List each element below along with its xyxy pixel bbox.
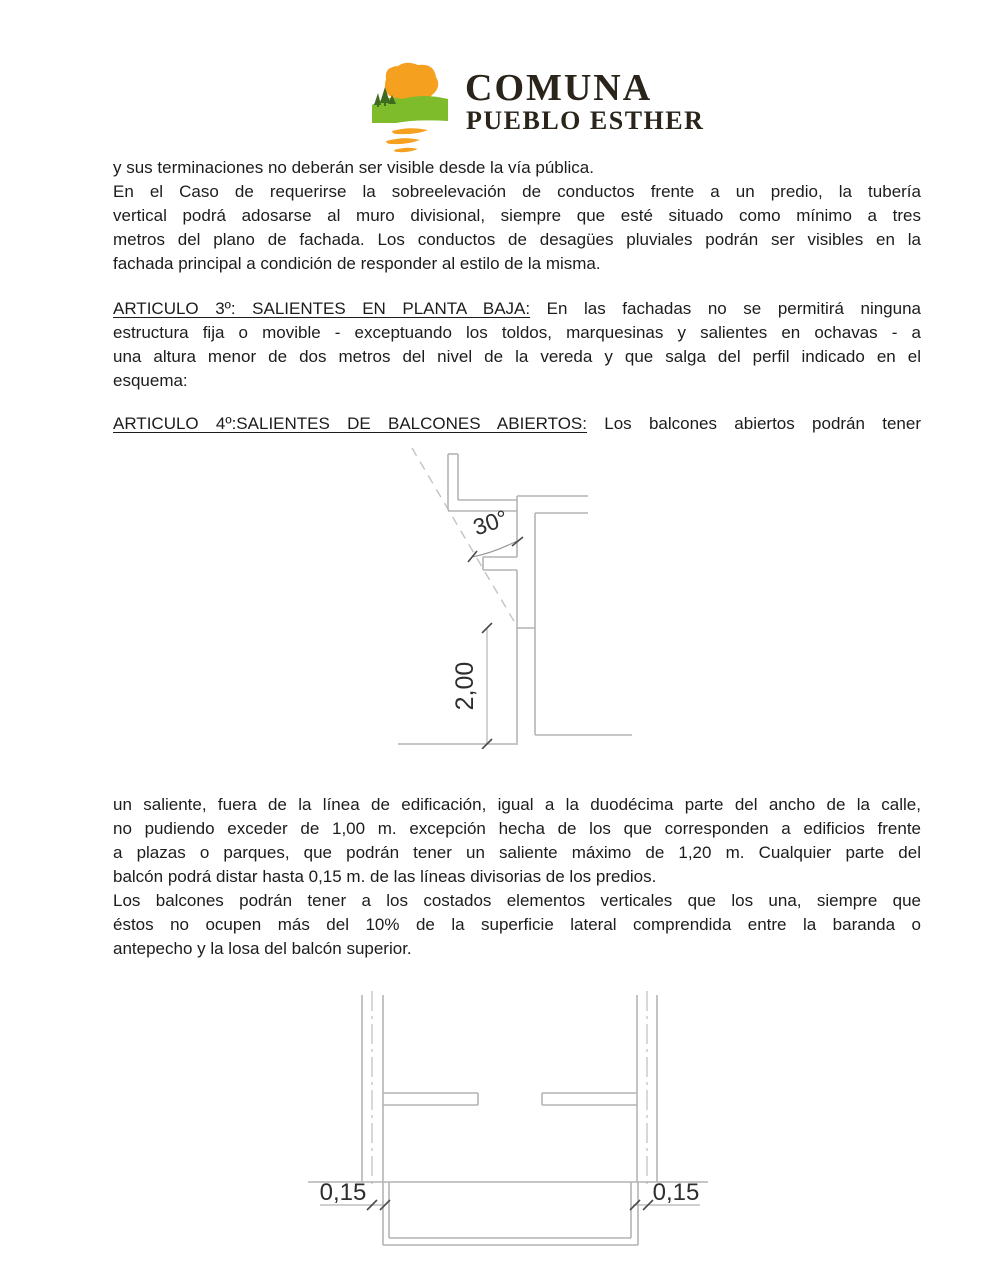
article-4-text: Los balcones abiertos podrán tener (587, 414, 921, 433)
sight-line-30deg (412, 448, 518, 628)
logo-sun-icon (385, 63, 438, 102)
text-line: Los balcones podrán tener a los costados… (113, 889, 921, 913)
projecting-slab (483, 557, 517, 570)
text-line: En el Caso de requerirse la sobreelevaci… (113, 180, 921, 204)
paragraph-articulo-3: ARTICULO 3º: SALIENTES EN PLANTA BAJA: E… (113, 297, 921, 393)
right-property-wall (637, 991, 657, 1188)
article-3-heading: ARTICULO 3º: SALIENTES EN PLANTA BAJA: (113, 299, 530, 318)
logo-title: COMUNA (465, 66, 652, 110)
angle-label: 30° (470, 504, 511, 540)
text-line: éstos no ocupen más del 10% de la superf… (113, 913, 921, 937)
parapet-outline (448, 454, 517, 511)
facade-wall (517, 511, 535, 743)
text-line: balcón podrá distar hasta 0,15 m. de las… (113, 865, 921, 889)
text-line: ARTICULO 4º:SALIENTES DE BALCONES ABIERT… (113, 412, 921, 436)
text-line: una altura menor de dos metros del nivel… (113, 345, 921, 369)
balcony-section-diagram: 30° 2,00 (390, 444, 640, 749)
paragraph-articulo-4: ARTICULO 4º:SALIENTES DE BALCONES ABIERT… (113, 412, 921, 436)
logo-graphic (366, 57, 454, 155)
upper-slab-lines (517, 496, 588, 513)
text-line: no pudiendo exceder de 1,00 m. excepción… (113, 817, 921, 841)
left-property-wall (362, 991, 383, 1188)
text-line: ARTICULO 3º: SALIENTES EN PLANTA BAJA: E… (113, 297, 921, 321)
right-offset-label: 0,15 (653, 1179, 700, 1206)
text-line: vertical podrá adosarse al muro division… (113, 204, 921, 228)
left-offset-label: 0,15 (320, 1179, 367, 1206)
front-wall (383, 1093, 637, 1105)
article-3-text: En las fachadas no se permitirá ninguna (530, 299, 921, 318)
balcony-outline (383, 1182, 638, 1245)
text-line: a plazas o parques, que podrán tener un … (113, 841, 921, 865)
logo-subtitle: PUEBLO ESTHER (466, 106, 704, 136)
text-line: y sus terminaciones no deberán ser visib… (113, 156, 921, 180)
height-dimension (482, 623, 492, 749)
paragraph-conductos: y sus terminaciones no deberán ser visib… (113, 156, 921, 276)
document-page: COMUNA PUEBLO ESTHER y sus terminaciones… (0, 0, 990, 1280)
angle-arc (472, 541, 517, 557)
logo-waves-icon (386, 128, 428, 152)
text-line: estructura fija o movible - exceptuando … (113, 321, 921, 345)
text-line: fachada principal a condición de respond… (113, 252, 921, 276)
paragraph-saliente: un saliente, fuera de la línea de edific… (113, 793, 921, 961)
text-line: metros del plano de fachada. Los conduct… (113, 228, 921, 252)
text-line: antepecho y la losa del balcón superior. (113, 937, 921, 961)
height-label: 2,00 (451, 662, 479, 711)
article-4-heading: ARTICULO 4º:SALIENTES DE BALCONES ABIERT… (113, 414, 587, 433)
balcony-plan-diagram: 0,15 0,15 (300, 985, 720, 1251)
text-line: un saliente, fuera de la línea de edific… (113, 793, 921, 817)
text-line: esquema: (113, 369, 921, 393)
